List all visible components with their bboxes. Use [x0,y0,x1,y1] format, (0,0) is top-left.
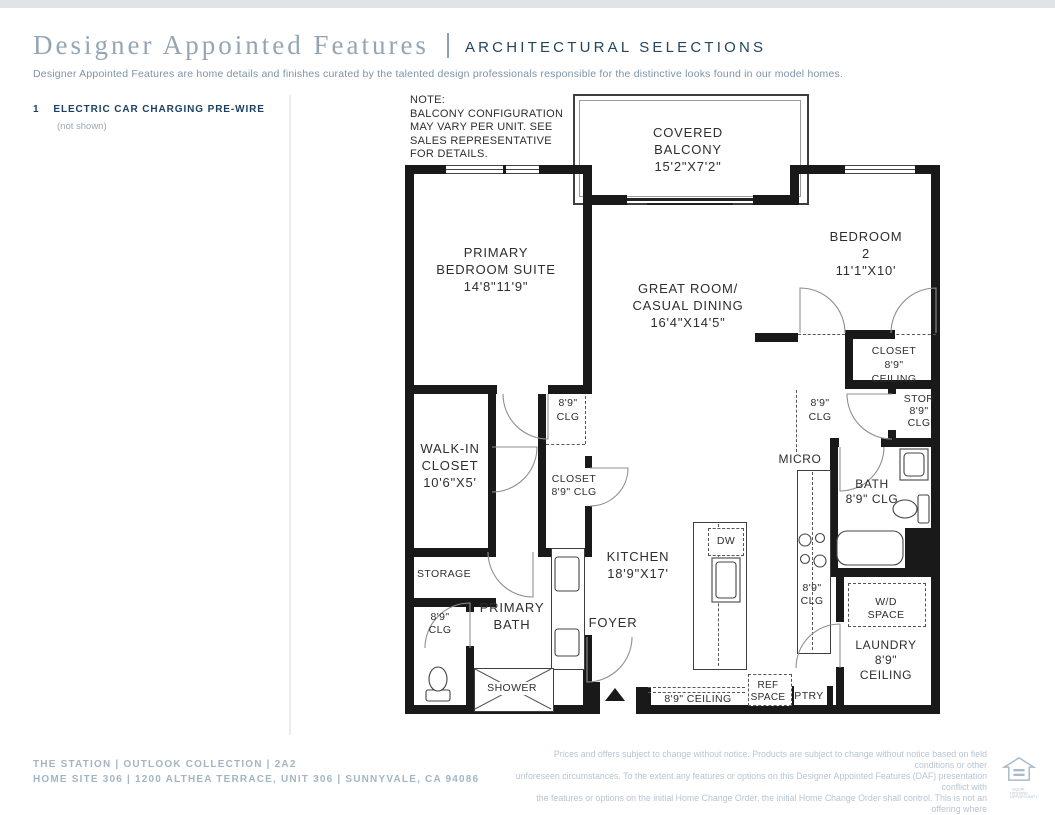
label-range-clg: 8'9" CLG [801,582,824,608]
label-bedroom-2: BEDROOM 2 11'1"X10' [827,228,906,279]
bath-sink-counter [900,449,928,480]
label-kitchen: KITCHEN 18'9"X17' [607,548,670,582]
soffit-dash [648,687,745,688]
label-great-room: GREAT ROOM/ CASUAL DINING 16'4"X14'5" [632,280,743,331]
feature-number: 1 [33,104,39,115]
label-foyer: FOYER [589,614,638,631]
entry-marker-icon [605,688,625,701]
label-hall2-clg: 8'9" CLG [809,396,832,424]
wall-segment [538,394,546,557]
primary-bath-door-arc [488,552,533,597]
wall-outer-left [405,165,414,714]
wall-laundry-left [836,577,844,622]
floor-plan: NOTE: BALCONY CONFIGURATION MAY VARY PER… [400,90,945,725]
toilet-icon [429,667,447,691]
label-primary-bath: PRIMARY BATH [480,599,545,633]
stor-door-arc [847,394,892,439]
header: Designer Appointed Features ARCHITECTURA… [33,30,1033,80]
wall-segment [585,506,592,548]
bedroom2-door-arc [800,288,845,333]
wall-segment [405,548,496,557]
equal-housing-logo: EQUAL HOUSING OPPORTUNITY [999,756,1039,812]
wall-segment [405,385,497,394]
label-storage: STORAGE [417,568,471,581]
page-subtitle: ARCHITECTURAL SELECTIONS [465,35,766,56]
wall-primary-divider [583,165,592,394]
feature-item: 1ELECTRIC CAR CHARGING PRE-WIRE [33,99,265,117]
door-opening-dash [798,334,845,335]
bath-vanity [551,548,585,670]
label-primary-bedroom: PRIMARY BEDROOM SUITE 14'8"11'9" [436,244,555,295]
label-laundry: LAUNDRY 8'9" CEILING [855,638,916,683]
hall-dash [796,390,797,452]
header-description: Designer Appointed Features are home det… [33,68,1033,80]
sliding-door-leaf [647,203,733,205]
wall-walkin-right [488,394,496,548]
feature-label: ELECTRIC CAR CHARGING PRE-WIRE [53,104,264,115]
label-stor: STOR 8'9" CLG [904,393,935,429]
wall-segment [466,607,474,612]
wall-block [905,528,932,569]
page-title: Designer Appointed Features [33,30,429,61]
sliding-door [627,198,753,201]
wall-pantry [827,686,833,705]
label-ref-space: REF SPACE [751,680,786,703]
label-bath2: BATH 8'9" CLG [846,477,899,507]
wall-bath-left [830,447,838,568]
wall-block [583,682,600,714]
wall-stub [755,333,798,342]
wall-under-balcony [588,195,627,205]
label-hall1-clg: 8'9" CLG [557,396,580,424]
cabinet-dash [812,472,813,650]
feature-note: (not shown) [57,121,265,132]
label-ptry: PTRY [794,690,823,703]
balcony-note: NOTE: BALCONY CONFIGURATION MAY VARY PER… [410,94,563,162]
footer-disclaimer: Prices and offers subject to change with… [512,749,987,815]
wall-segment [585,456,592,468]
feature-list: 1ELECTRIC CAR CHARGING PRE-WIRE (not sho… [33,99,265,132]
label-shower: SHOWER [484,682,540,695]
wall-bath-top [830,438,839,447]
window [845,165,915,174]
wall-bottom-right [636,705,940,714]
wall-bath-top [881,438,940,447]
toilet-tank [426,690,450,701]
bath-sink-icon [904,453,924,476]
top-border-band [0,0,1055,8]
title-divider [447,33,449,58]
wall-under-balcony [753,195,797,205]
range-cabinet [797,470,831,654]
footer-project-info: THE STATION | OUTLOOK COLLECTION | 2A2HO… [33,757,479,787]
label-micro: MICRO [779,452,822,467]
window [446,165,503,174]
wall-segment [466,646,474,714]
wall-laundry-top [830,568,940,577]
label-walk-in-closet: WALK-IN CLOSET 10'6"X5' [420,440,479,491]
label-toilet-clg: 8'9" CLG [429,611,452,636]
sidebar-divider [289,95,291,735]
walkin-door-arc [492,447,537,492]
door-opening-dash [891,334,936,335]
footer-line1: THE STATION | OUTLOOK COLLECTION | 2A2 [33,759,297,770]
label-covered-balcony: COVERED BALCONY 15'2"X7'2" [653,124,723,175]
bedroom2-closet-door-arc [891,288,936,333]
equal-housing-house-icon [1002,756,1036,782]
closet-dash [546,444,585,445]
entry-door-arc [587,637,632,682]
label-closet1: CLOSET 8'9" CLG [551,473,596,499]
wall-laundry-left [836,667,844,714]
label-kitchen-ceiling: 8'9" CEILING [664,693,731,705]
equal-housing-logo-text: EQUAL HOUSING OPPORTUNITY [1010,788,1028,799]
page: Designer Appointed Features ARCHITECTURA… [0,0,1055,815]
footer-line2: HOME SITE 306 | 1200 ALTHEA TERRACE, UNI… [33,774,479,785]
bathtub-icon [837,531,903,565]
label-dw: DW [717,535,735,548]
label-wd-space: W/D SPACE [857,596,916,622]
label-bedroom2-closet: CLOSET 8'9" CEILING [869,344,920,386]
wall-segment [548,385,592,394]
toilet2-tank [918,495,929,523]
window [506,165,539,174]
open-passage-dash [585,396,586,444]
